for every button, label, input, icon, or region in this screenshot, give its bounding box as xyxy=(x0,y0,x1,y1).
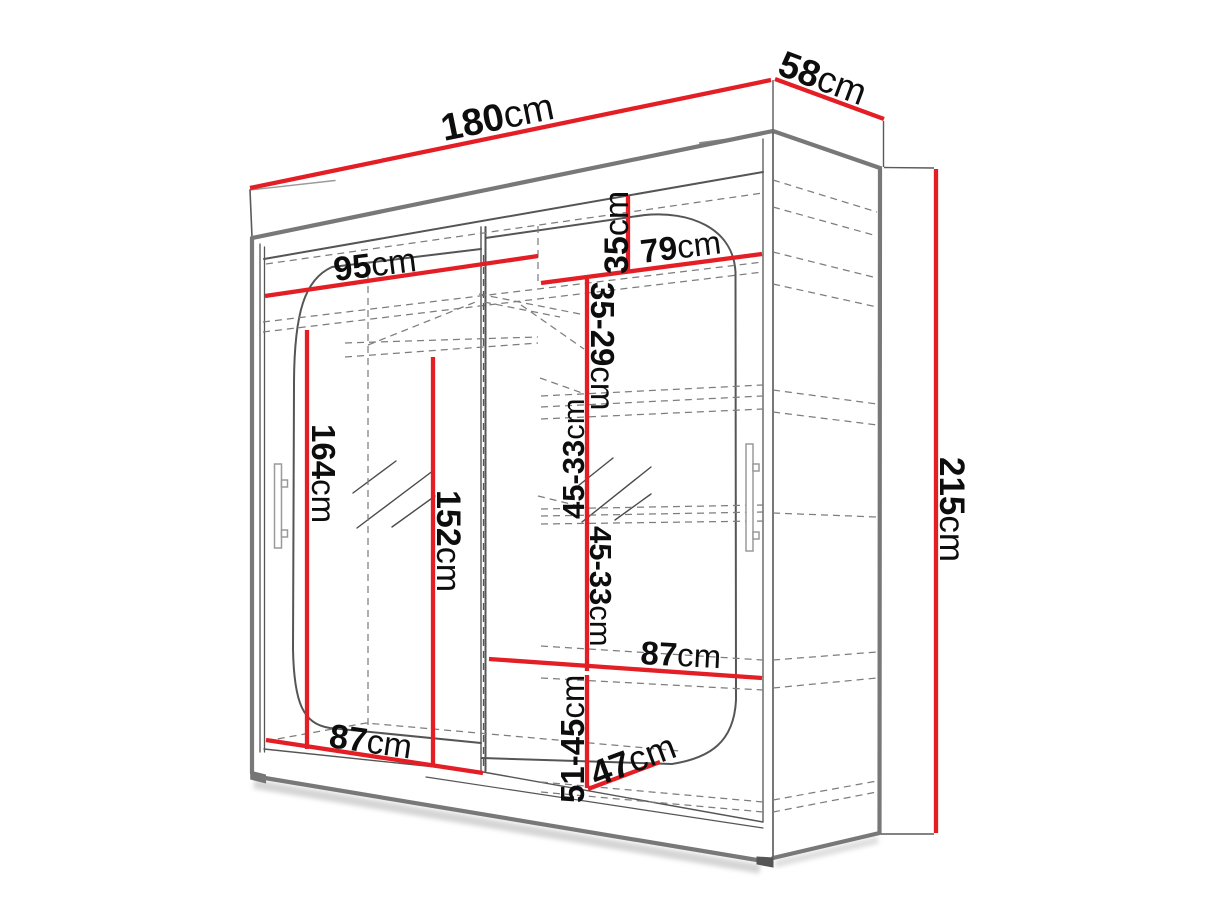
svg-text:45-33cm: 45-33cm xyxy=(583,526,618,647)
svg-text:164cm: 164cm xyxy=(305,424,342,523)
svg-text:51-45cm: 51-45cm xyxy=(554,675,591,803)
svg-text:35-29cm: 35-29cm xyxy=(584,282,621,410)
svg-text:152cm: 152cm xyxy=(429,490,467,592)
svg-text:35cm: 35cm xyxy=(598,191,636,274)
svg-text:45-33cm: 45-33cm xyxy=(556,398,591,519)
svg-text:87cm: 87cm xyxy=(640,634,723,675)
svg-text:215cm: 215cm xyxy=(932,457,971,562)
